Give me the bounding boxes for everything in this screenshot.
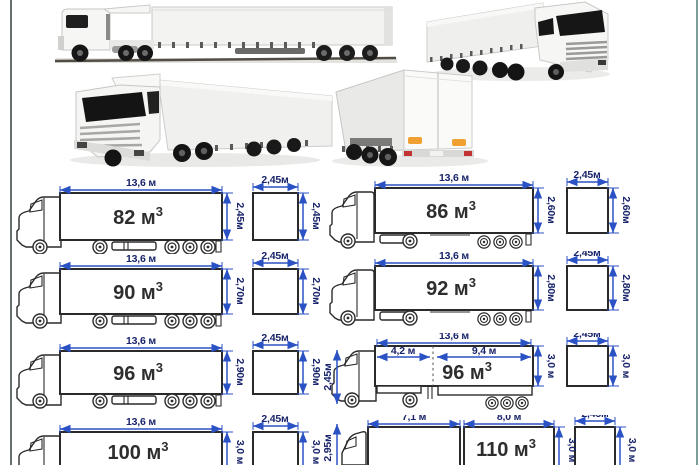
support-legs-outline [428,387,432,399]
height-dim-label: 2,80м [545,274,557,302]
front-length-dim-label: 4,2 м [391,345,416,357]
fuel-tank-outline [112,316,156,324]
length-dim-label: 13,6 м [126,177,156,189]
front-length-dim-label: 7,1 м [402,415,427,423]
length-dim-label: 13,6 м [439,251,469,262]
section-width-label: 2,45м [573,251,601,259]
section-width-label: 2,45м [581,415,609,420]
volume-label: 110 м3 [476,436,536,461]
cross-section-square [253,193,298,240]
height-dim-label: 2,90м [234,358,246,386]
height-dim-label: 2,45м [234,202,246,230]
truck-96-combo-drawing [332,346,533,409]
rear-length-dim-label: 9,4 м [472,345,497,357]
truck-front-three-quarter-left-photo [70,74,332,167]
volume-label: 86 м3 [426,198,476,223]
height-dim-label: 3,0 м [234,440,246,465]
height-dim-label: 3,0 м [545,354,557,379]
diagram-row-3: 13,6 м 2,90м 96 м3 2,45м 2,90м [10,333,690,415]
cross-section-square [567,188,608,233]
height-dim-label: 2,60м [545,196,557,224]
section-height-label: 2,90м [310,358,322,386]
section-height-label: 2,80м [620,274,632,302]
diagram-row-1: 13,6 м 2,45м 82 м3 2,45м 2,45м 13,6 м 2,… [10,168,690,254]
truck-rear-three-quarter-photo [332,70,488,167]
volume-label: 100 м3 [108,439,169,464]
cross-section-square [567,266,608,310]
section-width-label: 2,45м [261,415,289,425]
length-dim-label: 13,6 м [439,172,469,184]
truck-front-three-quarter-right-photo [427,2,610,81]
trailer-skirt-outline [438,386,532,395]
truck-cab-outline [17,436,61,465]
cross-section-square [575,427,615,465]
cross-section-square [567,346,608,386]
volume-label: 92 м3 [426,275,476,300]
cross-section-square [253,432,298,465]
section-height-label: 2,70м [310,277,322,305]
diagram-row-4: 13,6 м 3,0 м 100 м3 2,45м 3,0 м 7,1 м 8,… [10,415,690,465]
cross-section-square [253,351,298,394]
section-width-label: 2,45м [573,333,601,340]
height-dim-label: 2,70м [234,277,246,305]
volume-label: 90 м3 [113,279,163,304]
length-dim-label: 13,6 м [126,335,156,347]
truck-box-outline [368,427,460,465]
height-dim-label: 3,0 м [566,438,578,463]
volume-label: 96 м3 [113,360,163,385]
truck-volumes-diagram-page: 13,6 м 2,45м 82 м3 2,45м 2,45м 13,6 м 2,… [0,0,700,465]
volume-label: 82 м3 [113,204,163,229]
cross-section-square [253,269,298,314]
cab-height-dim-label: 2,45м [322,363,334,391]
cab-height-dim-label: 2,95м [322,434,334,462]
truck-side-view-photo [55,5,397,63]
rear-length-dim-label: 8,0 м [497,415,522,423]
page-right-border [696,0,698,465]
section-height-label: 3,0 м [620,354,632,379]
diagram-row-2: 13,6 м 2,70м 90 м3 2,45м 2,70м 13,6 м 2,… [10,251,690,335]
volume-label: 96 м3 [442,359,492,384]
section-width-label: 2,45м [261,251,289,262]
section-height-label: 2,60м [620,196,632,224]
fuel-tank-outline [112,242,156,250]
length-dim-label: 13,6 м [439,333,469,342]
section-width-label: 2,45м [261,174,289,186]
section-width-label: 2,45м [261,333,289,344]
section-height-label: 2,45м [310,202,322,230]
length-dim-label: 13,6 м [126,416,156,428]
length-dim-label: 13,6 м [126,253,156,265]
section-width-label: 2,45м [573,169,601,181]
section-height-label: 3,0 м [310,440,322,465]
fuel-tank-outline [112,396,156,404]
section-height-label: 3,0 м [626,438,638,463]
truck-photo-gallery [10,0,690,170]
chassis-outline [377,386,421,393]
